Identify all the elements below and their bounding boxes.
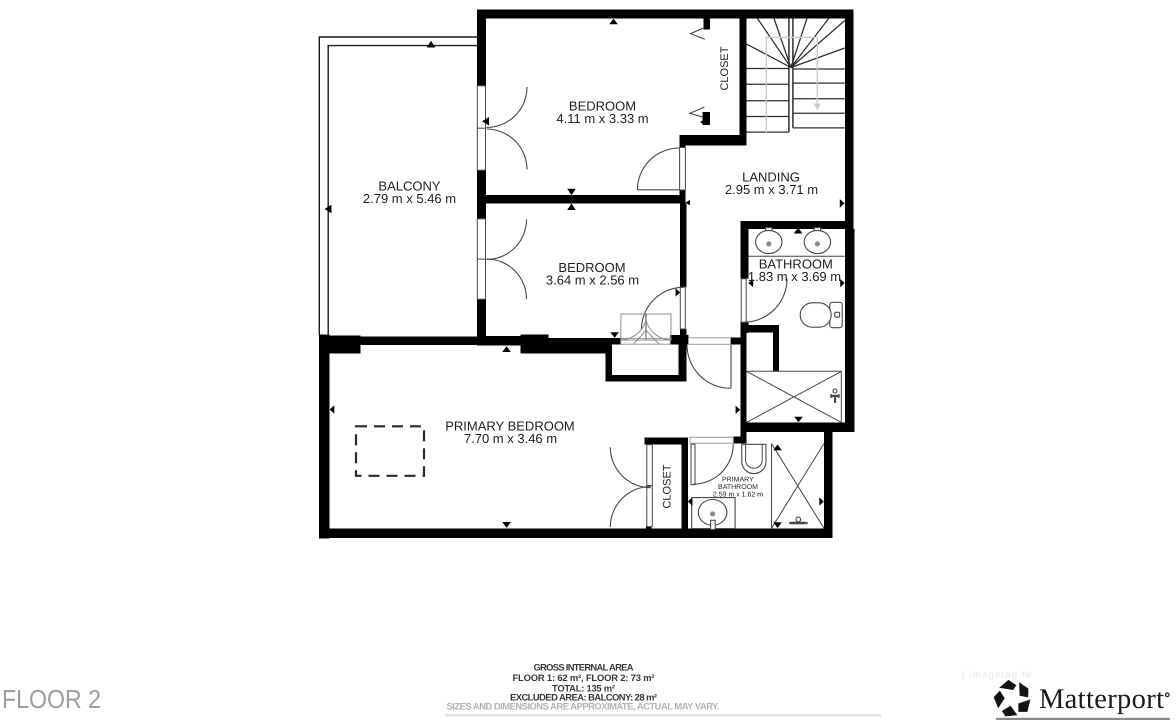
svg-text:FLOOR 2: FLOOR 2 (2, 684, 101, 714)
svg-text:PRIMARY: PRIMARY (722, 476, 754, 483)
svg-text:SIZES AND DIMENSIONS ARE APPRO: SIZES AND DIMENSIONS ARE APPROXIMATE, AC… (447, 700, 720, 711)
svg-text:4.11 m x 3.33 m: 4.11 m x 3.33 m (556, 111, 648, 126)
svg-text:CLOSET: CLOSET (719, 46, 731, 90)
svg-text:GROSS INTERNAL AREA: GROSS INTERNAL AREA (534, 661, 634, 672)
svg-text:2.59 m x 1.62 m: 2.59 m x 1.62 m (713, 492, 763, 499)
svg-text:2.95 m x 3.71 m: 2.95 m x 3.71 m (725, 182, 818, 197)
svg-text:3.64 m x 2.56 m: 3.64 m x 2.56 m (546, 273, 639, 288)
svg-text:| imagetag №: | imagetag № (962, 670, 1033, 681)
svg-text:2.79 m x 5.46 m: 2.79 m x 5.46 m (363, 191, 456, 206)
svg-text:BATHROOM: BATHROOM (718, 484, 758, 491)
svg-text:FLOOR 1: 62 m², FLOOR 2: 73 m²: FLOOR 1: 62 m², FLOOR 2: 73 m² (513, 672, 655, 683)
svg-text:CLOSET: CLOSET (662, 464, 674, 508)
svg-text:7.70 m x 3.46 m: 7.70 m x 3.46 m (464, 431, 557, 446)
svg-text:1.83 m x 3.69 m: 1.83 m x 3.69 m (748, 269, 841, 284)
svg-text:Matterport: Matterport (1039, 684, 1164, 715)
